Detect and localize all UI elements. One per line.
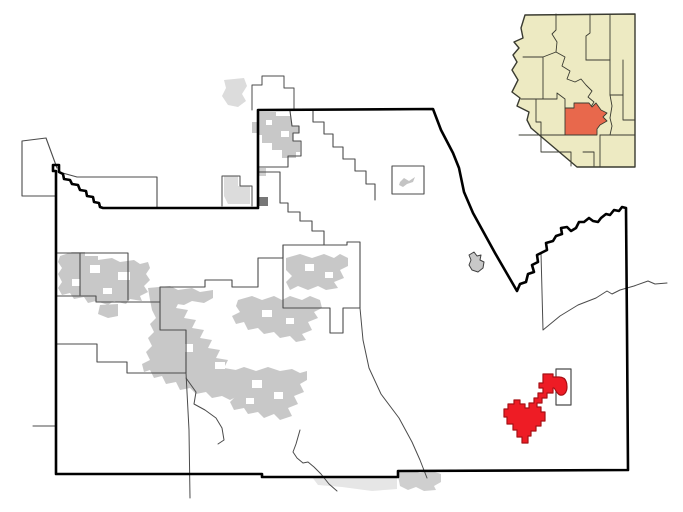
urban-area-south-cluster (228, 367, 307, 420)
urban-area-box-blob (286, 254, 348, 290)
inset-map (512, 14, 635, 167)
outlined-blob-east (469, 252, 484, 272)
map-stage (0, 0, 683, 512)
boundary-exterior-north (252, 76, 294, 110)
boundary-east-river (541, 253, 667, 330)
county-map-svg (0, 0, 683, 512)
boundary-south-vertical (186, 373, 190, 498)
urban-area-east-cluster (232, 296, 322, 342)
boundary-northeast-staircase (313, 110, 375, 200)
urban-area-northwest-cluster (58, 252, 150, 305)
urban-area-border-strip (397, 470, 441, 491)
exterior-faded-area-nw (224, 176, 250, 204)
urban-area-small-south-bit (98, 304, 118, 318)
highlighted-place (504, 374, 567, 443)
boundary-north-staircase (259, 172, 324, 245)
boundary-southeast-long (360, 308, 427, 478)
urban-area-north-town (259, 112, 300, 158)
boundary-small-rect-feature (392, 166, 424, 194)
inset-state-shape (512, 14, 635, 167)
urban-area-dark-square (259, 197, 268, 206)
exterior-faded-area-north (222, 78, 247, 107)
